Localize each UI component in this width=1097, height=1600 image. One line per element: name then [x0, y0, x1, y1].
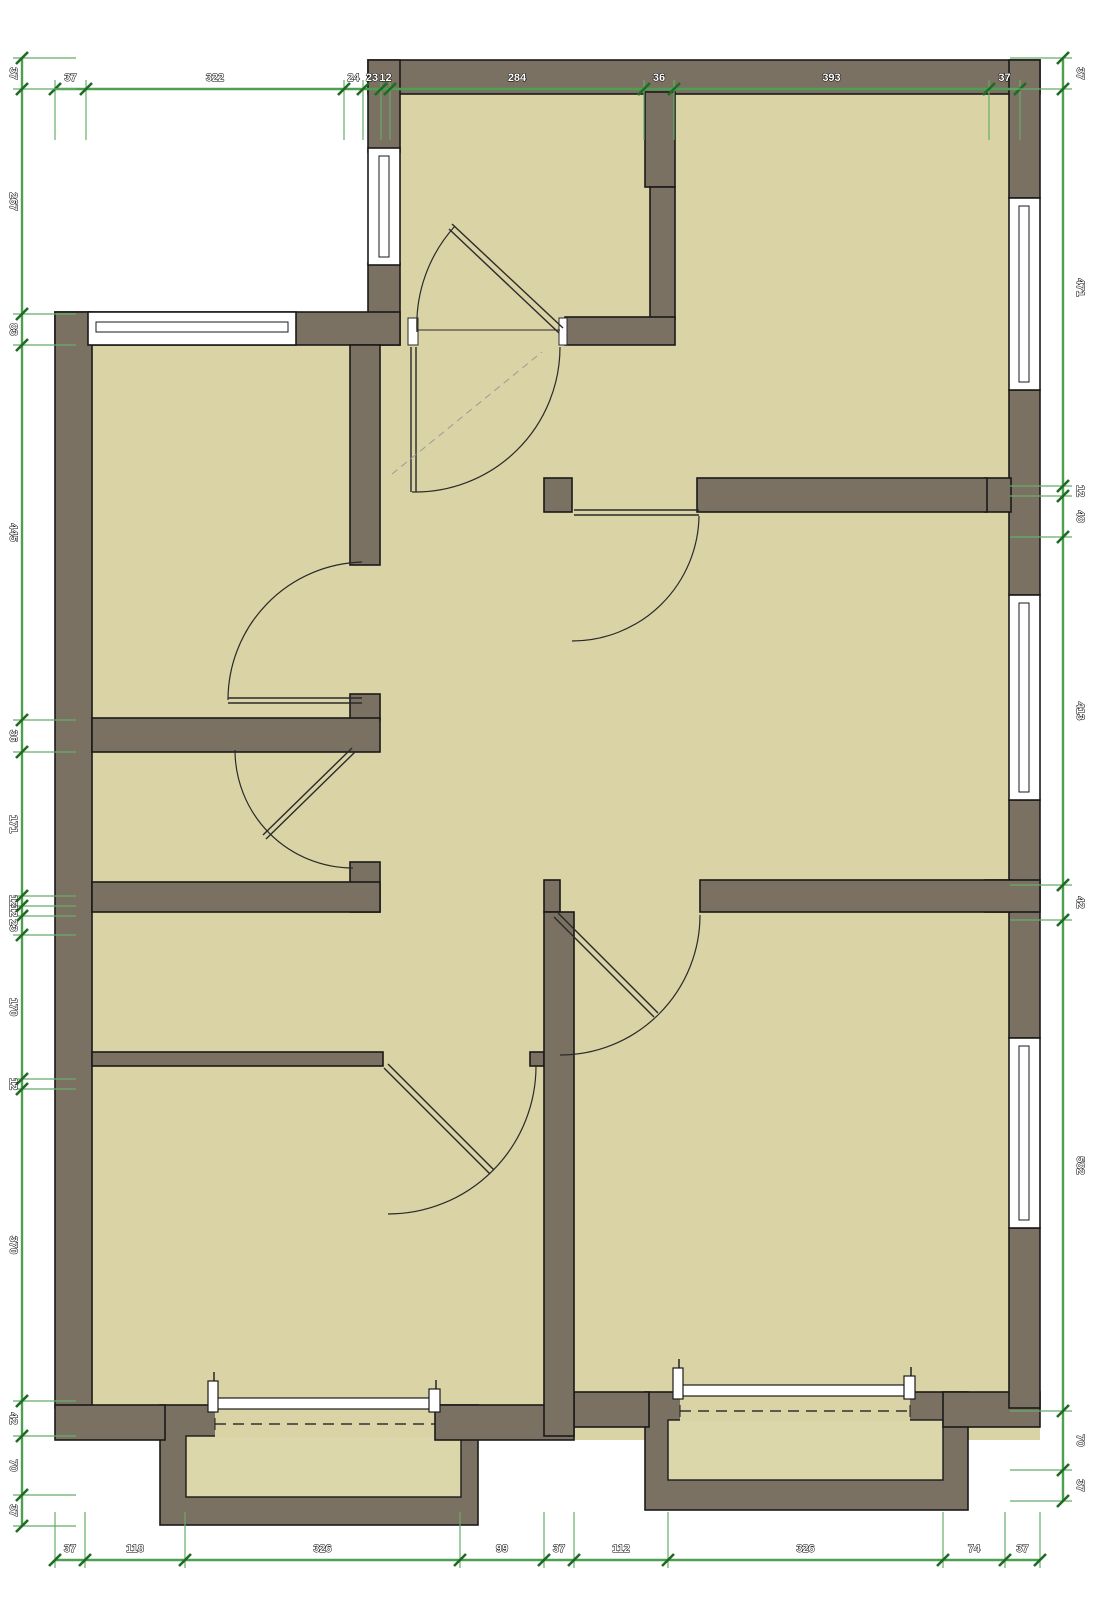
wall-stub-top — [645, 92, 675, 187]
wall-central-vertical — [544, 912, 574, 1436]
dimension-label: 74 — [968, 1543, 981, 1555]
dimension-label: 582 — [1074, 1156, 1086, 1174]
dimension-label: 37 — [64, 72, 76, 84]
dimension-label: 23 — [366, 72, 378, 84]
dimension-label: 12 — [379, 72, 391, 84]
floor-plan-canvas: 3732224231228436393373711832699371123267… — [0, 0, 1097, 1600]
dimension-label: 370 — [7, 1236, 19, 1254]
dimension-label: 70 — [7, 1459, 19, 1471]
dimension-label: 83 — [7, 323, 19, 335]
window-upper-left — [368, 148, 400, 265]
dimension-label: 37 — [7, 67, 19, 79]
room-area-main-right — [368, 60, 1040, 1440]
window-recess — [88, 312, 296, 345]
dimension-label: 23 — [7, 919, 19, 931]
room-area-main-left — [55, 312, 368, 1440]
wall-right-c — [1009, 800, 1040, 1038]
dimension-label: 12 — [7, 1078, 19, 1090]
dimension-label: 471 — [1074, 278, 1086, 296]
wall-right-a — [1009, 60, 1040, 198]
dimension-label: 42 — [7, 1412, 19, 1424]
dimension-label: 326 — [796, 1543, 814, 1555]
wall-mid-top-a — [544, 478, 572, 512]
wall-bottom-mid-step — [574, 1392, 649, 1427]
dimension-label: 171 — [7, 815, 19, 833]
dimension-label: 37 — [64, 1543, 76, 1555]
wall-right-bump1 — [985, 478, 1011, 512]
dimension-label: 37 — [1074, 1479, 1086, 1491]
dimension-label: 118 — [126, 1543, 144, 1555]
dimension-label: 36 — [653, 72, 665, 84]
wall-hall-left-upper — [350, 345, 380, 565]
wall-stub-top2 — [650, 187, 675, 319]
dimension-label: 393 — [822, 72, 840, 84]
dimension-label: 326 — [313, 1543, 331, 1555]
wall-h-left3a — [92, 1052, 383, 1066]
dimension-label: 37 — [7, 1504, 19, 1516]
wall-mid-bot-b — [700, 880, 1040, 912]
wall-mid-bot-a — [544, 880, 560, 912]
wall-right-b — [1009, 390, 1040, 595]
wall-h-left3b — [530, 1052, 544, 1066]
dimension-label: 42 — [1074, 896, 1086, 908]
left-porch-floor — [186, 1436, 461, 1497]
wall-left — [55, 312, 92, 1408]
dimension-label: 322 — [206, 72, 224, 84]
dimension-label: 36 — [7, 730, 19, 742]
wall-mid-top-b — [697, 478, 987, 512]
dimension-label: 99 — [496, 1543, 508, 1555]
dimension-label: 48 — [1074, 510, 1086, 522]
dimension-label: 24 — [347, 72, 360, 84]
dimension-label: 37 — [998, 72, 1010, 84]
floor-plan-page: 3732224231228436393373711832699371123267… — [0, 0, 1097, 1600]
dimension-label: 112 — [612, 1543, 630, 1555]
dimension-label: 413 — [1074, 702, 1086, 720]
dimension-label: 284 — [508, 72, 527, 84]
dimension-label: 170 — [7, 998, 19, 1016]
wall-bottom-left — [55, 1405, 165, 1440]
dimension-label: 267 — [7, 192, 19, 210]
wall-h-left2 — [92, 882, 380, 912]
wall-h-left1 — [92, 718, 380, 752]
window-right-2 — [1009, 595, 1040, 800]
dimension-label: 37 — [1074, 67, 1086, 79]
right-porch-floor — [668, 1420, 943, 1480]
dimension-label: 37 — [553, 1543, 565, 1555]
window-right-1 — [1009, 198, 1040, 390]
window-right-3 — [1009, 1038, 1040, 1228]
dimension-label: 70 — [1074, 1434, 1086, 1446]
dimension-label: 445 — [7, 523, 19, 541]
dimension-label: 37 — [1016, 1543, 1028, 1555]
wall-right-d — [1009, 1228, 1040, 1408]
dimension-label: 12 — [7, 905, 19, 917]
wall-under-door1 — [565, 317, 675, 345]
dimension-label: 12 — [1074, 485, 1086, 497]
